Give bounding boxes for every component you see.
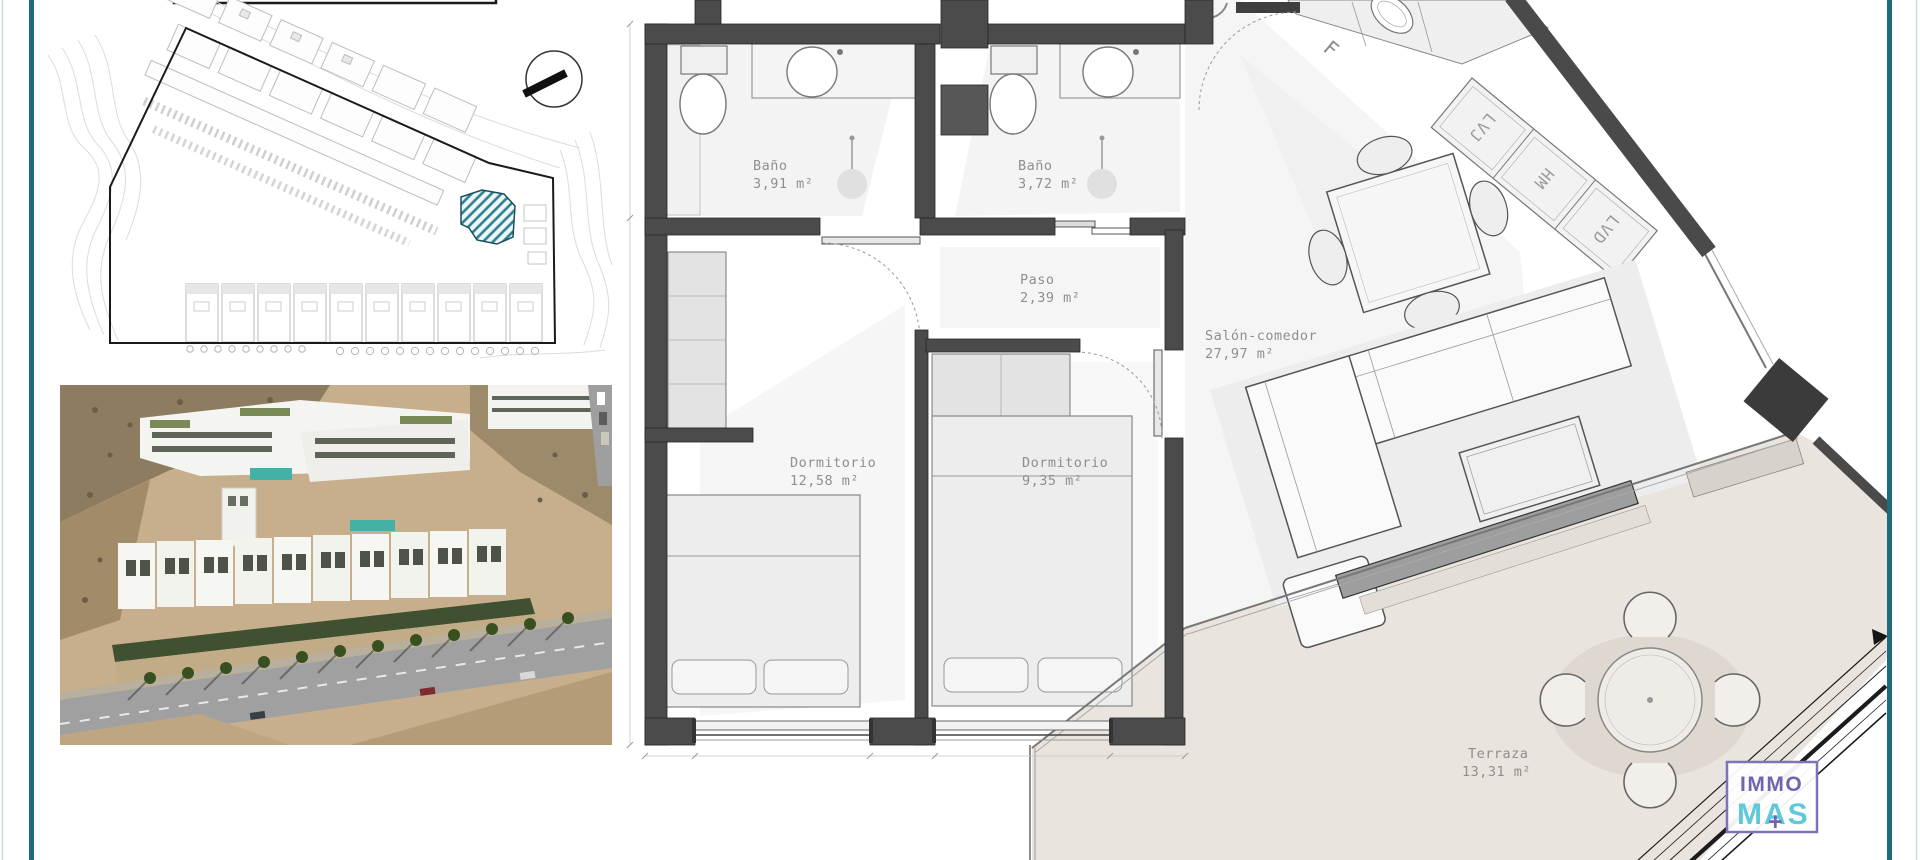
frame-line-left [29,0,34,860]
shower-head-icon [837,169,867,199]
immomas-logo: IMMO MAS + [1727,762,1817,836]
room-label-dormitorio2-name: Dormitorio [1022,455,1108,471]
logo-plus-icon: + [1768,808,1783,836]
room-label-bano1-area: 3,91 m² [753,176,813,192]
title-block [174,0,496,3]
room-label-paso-area: 2,39 m² [1020,290,1080,306]
room-label-bano2-area: 3,72 m² [1018,176,1078,192]
logo-text-immo: IMMO [1740,773,1803,796]
aerial-photo [60,385,612,748]
shower-head-icon [1087,169,1117,199]
room-label-dormitorio1-name: Dormitorio [790,455,876,471]
room-label-terraza-area: 13,31 m² [1462,764,1531,780]
room-label-paso-name: Paso [1020,272,1055,288]
brochure-page: F LVJ HM LVD [0,0,1920,860]
room-label-dormitorio2-area: 9,35 m² [1022,473,1082,489]
frame-line-right [1887,0,1892,860]
room-label-terraza-name: Terraza [1468,746,1528,762]
room-label-bano2-name: Baño [1018,158,1053,174]
room-label-bano1-name: Baño [753,158,788,174]
room-label-salon-name: Salón-comedor [1205,328,1317,344]
room-label-dormitorio1-area: 12,58 m² [790,473,859,489]
room-label-salon-area: 27,97 m² [1205,346,1274,362]
